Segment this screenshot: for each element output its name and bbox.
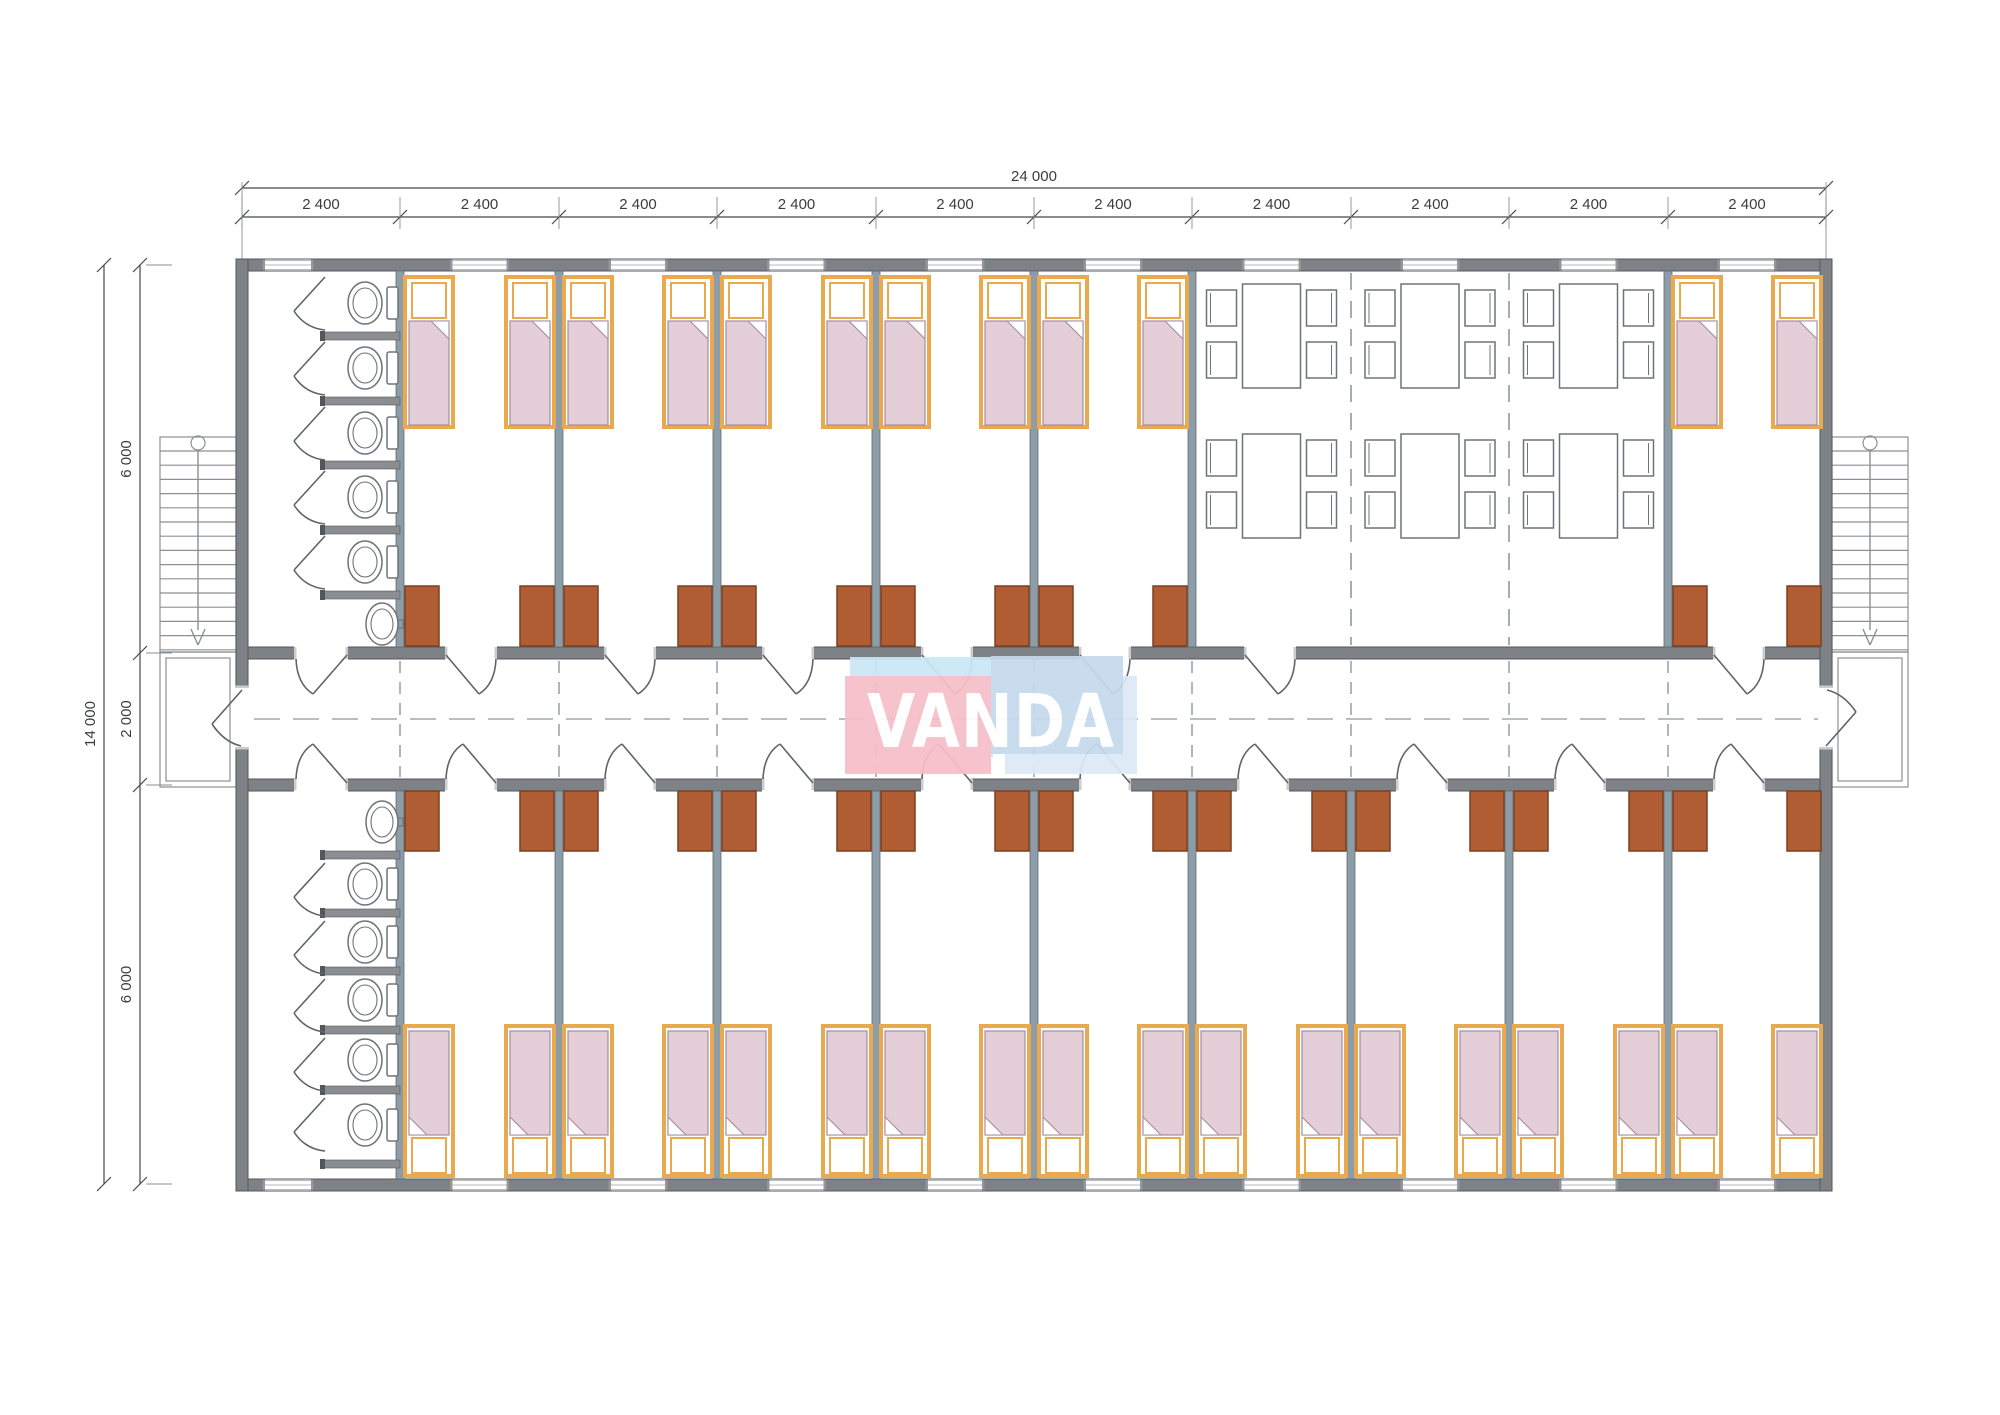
- bed: [664, 1026, 712, 1176]
- wardrobe: [1153, 791, 1187, 851]
- logo-text: VANDA: [867, 679, 1115, 765]
- wardrobe: [1470, 791, 1504, 851]
- dimension-label: 6 000: [118, 966, 135, 1004]
- dimension-label: 14 000: [82, 701, 99, 747]
- vanda-logo: VANDA: [845, 656, 1137, 774]
- dining-table: [1365, 284, 1495, 388]
- dimension-label: 2 400: [302, 196, 340, 213]
- dimension-label: 2 400: [619, 196, 657, 213]
- floor-plan-svg: 24 0002 4002 4002 4002 4002 4002 4002 40…: [0, 0, 2000, 1415]
- wardrobe: [405, 586, 439, 646]
- dimension-label: 2 400: [1570, 196, 1608, 213]
- wardrobe: [881, 791, 915, 851]
- wardrobe: [678, 791, 712, 851]
- dimension-label: 2 000: [118, 700, 135, 738]
- dimension-label: 2 400: [1253, 196, 1291, 213]
- bed: [1356, 1026, 1404, 1176]
- wardrobe: [1787, 586, 1821, 646]
- dimension-label: 2 400: [1094, 196, 1132, 213]
- wardrobe: [1197, 791, 1231, 851]
- bed: [823, 277, 871, 427]
- dining-table: [1207, 434, 1337, 538]
- wardrobe: [995, 586, 1029, 646]
- dimension-label: 2 400: [461, 196, 499, 213]
- dimension-label: 24 000: [1011, 168, 1057, 185]
- wardrobe: [722, 586, 756, 646]
- bed: [506, 1026, 554, 1176]
- bed: [1039, 277, 1087, 427]
- wardrobe: [1629, 791, 1663, 851]
- wardrobe: [1312, 791, 1346, 851]
- wardrobe: [837, 586, 871, 646]
- wardrobe: [1673, 791, 1707, 851]
- bed: [1298, 1026, 1346, 1176]
- bed: [881, 1026, 929, 1176]
- bed: [1673, 1026, 1721, 1176]
- bed: [405, 277, 453, 427]
- bed: [981, 1026, 1029, 1176]
- dimension-label: 2 400: [1411, 196, 1449, 213]
- bed: [1139, 1026, 1187, 1176]
- wardrobe: [881, 586, 915, 646]
- washroom-top: [294, 277, 403, 645]
- wardrobe: [1039, 791, 1073, 851]
- bed: [564, 1026, 612, 1176]
- dining-area: [1207, 273, 1654, 645]
- wardrobe: [837, 791, 871, 851]
- wardrobe: [1787, 791, 1821, 851]
- bed: [1456, 1026, 1504, 1176]
- wardrobe: [995, 791, 1029, 851]
- bed: [981, 277, 1029, 427]
- wardrobe: [564, 791, 598, 851]
- bed: [1773, 277, 1821, 427]
- wardrobe: [722, 791, 756, 851]
- wardrobe: [1673, 586, 1707, 646]
- right-staircase: [1832, 436, 1908, 787]
- bed: [1039, 1026, 1087, 1176]
- dimension-label: 2 400: [778, 196, 816, 213]
- dining-table: [1365, 434, 1495, 538]
- bed: [1615, 1026, 1663, 1176]
- dining-table: [1524, 284, 1654, 388]
- bed: [405, 1026, 453, 1176]
- bed: [564, 277, 612, 427]
- bed: [1673, 277, 1721, 427]
- wardrobe: [520, 586, 554, 646]
- bed: [722, 1026, 770, 1176]
- wardrobe: [1153, 586, 1187, 646]
- dimension-label: 6 000: [118, 440, 135, 478]
- bed: [506, 277, 554, 427]
- bed: [722, 277, 770, 427]
- dining-table: [1207, 284, 1337, 388]
- wardrobe: [1356, 791, 1390, 851]
- bed: [664, 277, 712, 427]
- bed: [823, 1026, 871, 1176]
- bed: [1773, 1026, 1821, 1176]
- bed: [1139, 277, 1187, 427]
- wardrobe: [520, 791, 554, 851]
- wardrobe: [678, 586, 712, 646]
- dining-table: [1524, 434, 1654, 538]
- wardrobe: [1514, 791, 1548, 851]
- dimension-label: 2 400: [1728, 196, 1766, 213]
- bed: [881, 277, 929, 427]
- wardrobe: [1039, 586, 1073, 646]
- washroom-bottom: [294, 801, 403, 1169]
- dimension-label: 2 400: [936, 196, 974, 213]
- wardrobe: [405, 791, 439, 851]
- left-staircase: [160, 436, 236, 787]
- top-dimension-lines: 24 0002 4002 4002 4002 4002 4002 4002 40…: [235, 168, 1833, 259]
- wardrobe: [564, 586, 598, 646]
- left-dimension-lines: 14 0006 0002 0006 000: [82, 258, 172, 1191]
- floor-plan: 24 0002 4002 4002 4002 4002 4002 4002 40…: [0, 0, 2000, 1415]
- bed: [1514, 1026, 1562, 1176]
- bed: [1197, 1026, 1245, 1176]
